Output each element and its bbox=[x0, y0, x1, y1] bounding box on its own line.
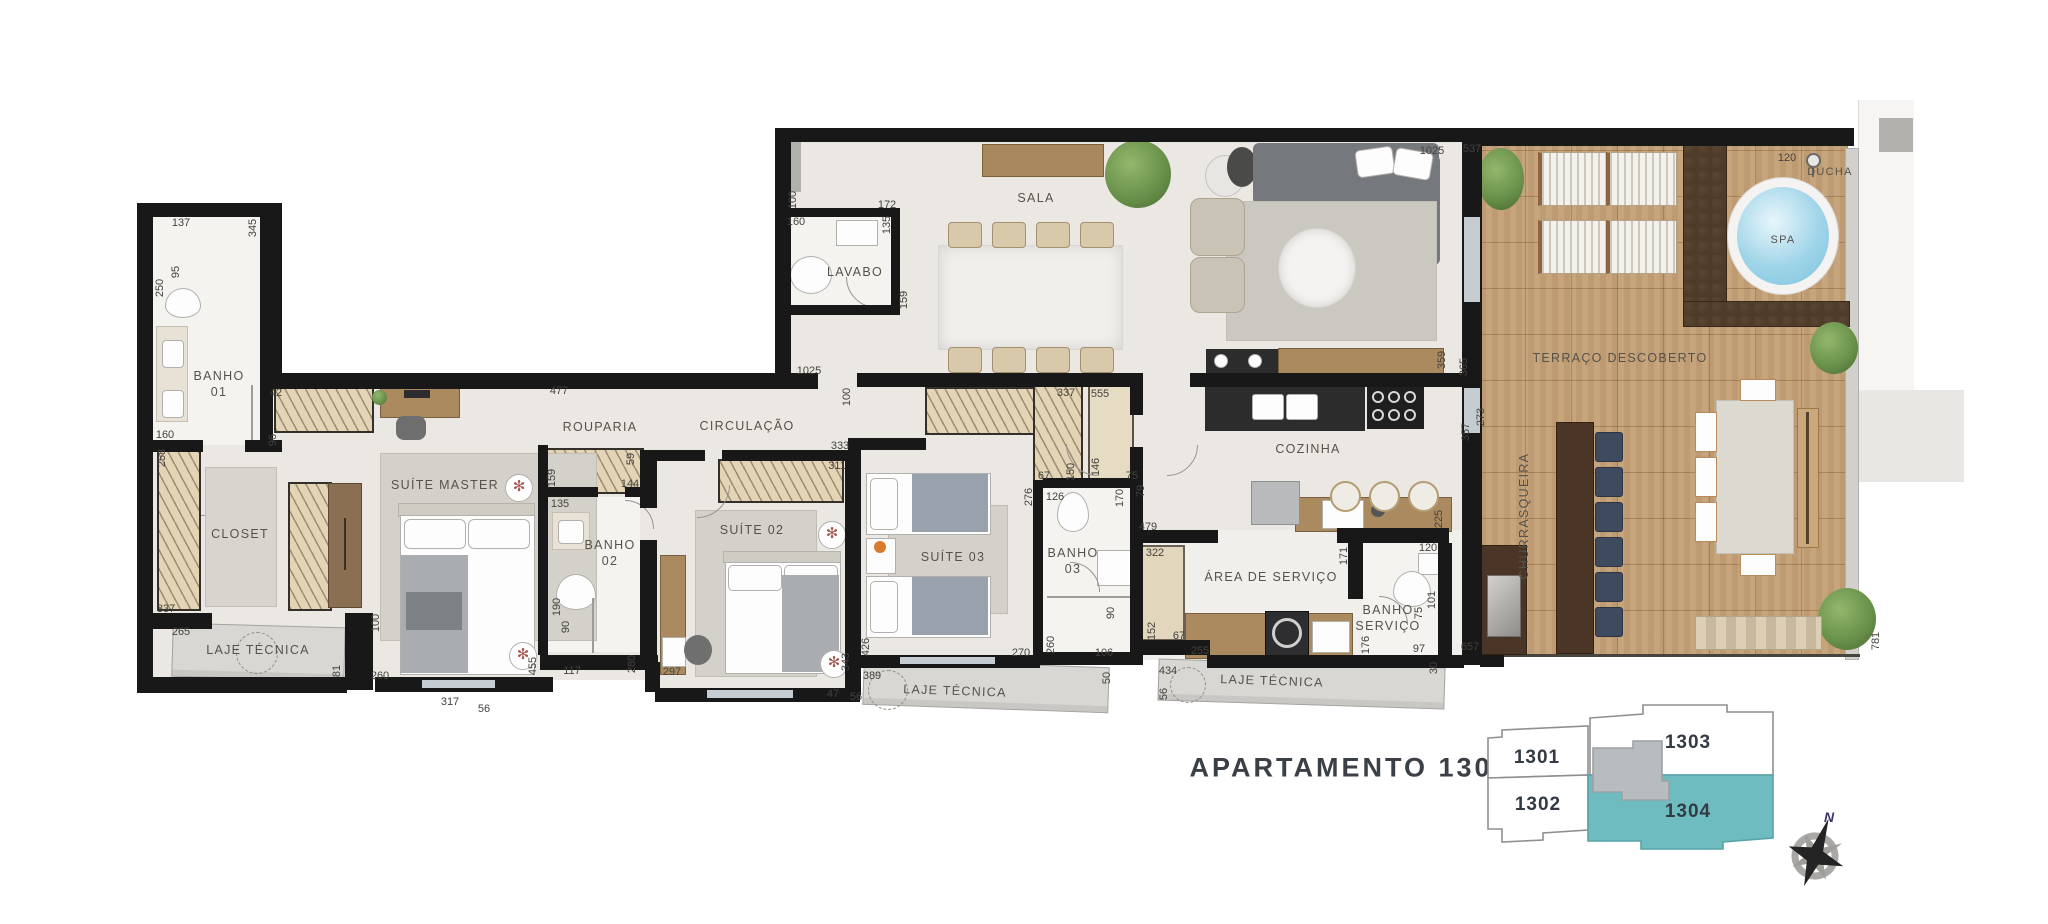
room-label-lavabo: LAVABO bbox=[827, 264, 883, 280]
dimension-label: 537 bbox=[1463, 143, 1481, 155]
room-label-circulacao: CIRCULAÇÃO bbox=[700, 418, 795, 434]
dimension-label: 337 bbox=[157, 603, 175, 615]
dimension-label: 172 bbox=[878, 199, 896, 211]
dimension-label: 146 bbox=[1090, 458, 1102, 476]
dimension-label: 260 bbox=[371, 670, 389, 682]
dimension-label: 79 bbox=[1135, 485, 1147, 497]
dimension-label: 120 bbox=[1778, 152, 1796, 164]
dimension-label: 477 bbox=[550, 385, 568, 397]
room-label-banho-servico: BANHO SERVIÇO bbox=[1355, 602, 1420, 635]
dimension-label: 176 bbox=[1360, 636, 1372, 654]
room-label-suite-02: SUÍTE 02 bbox=[720, 522, 785, 538]
dimension-label: 75 bbox=[1413, 607, 1425, 619]
dimension-label: 270 bbox=[1012, 647, 1030, 659]
dimension-label: 317 bbox=[441, 696, 459, 708]
room-label-suite-master: SUÍTE MASTER bbox=[391, 477, 499, 493]
dimension-label: 276 bbox=[1023, 488, 1035, 506]
dimension-label: 126 bbox=[1046, 491, 1064, 503]
room-label-suite-03: SUÍTE 03 bbox=[921, 549, 986, 565]
dimension-label: 333 bbox=[831, 440, 849, 452]
dimension-label: 135 bbox=[551, 498, 569, 510]
dimension-label: 1025 bbox=[1420, 145, 1444, 157]
dimension-label: 59 bbox=[625, 453, 637, 465]
room-label-banho-01: BANHO 01 bbox=[194, 368, 245, 401]
dimension-label: 255 bbox=[1191, 645, 1209, 657]
room-label-banho-03: BANHO 03 bbox=[1048, 545, 1099, 578]
dimension-label: 365 bbox=[1458, 358, 1470, 376]
dimension-label: 137 bbox=[172, 217, 190, 229]
dimension-label: 160 bbox=[787, 216, 805, 228]
compass-rose: N bbox=[1773, 806, 1863, 901]
dimension-label: 96 bbox=[267, 434, 279, 446]
dimension-label: 258 bbox=[156, 449, 168, 467]
dimension-label: 152 bbox=[1146, 622, 1158, 640]
dimension-label: 159 bbox=[546, 469, 558, 487]
dimension-label: 280 bbox=[626, 655, 638, 673]
dimension-label: 106 bbox=[1095, 647, 1113, 659]
dimension-label: 101 bbox=[1426, 591, 1438, 609]
room-label-terraco-descoberto: TERRAÇO DESCOBERTO bbox=[1532, 350, 1707, 366]
dimension-label: 144 bbox=[621, 478, 639, 490]
dimension-label: 95 bbox=[170, 266, 182, 278]
dimension-label: 56 bbox=[1158, 688, 1170, 700]
keyplan-label-1304: 1304 bbox=[1665, 801, 1711, 822]
dimension-label: 117 bbox=[563, 665, 581, 677]
dimension-label: 170 bbox=[1114, 489, 1126, 507]
dimension-label: 455 bbox=[527, 657, 539, 675]
dimension-label: 357 bbox=[1460, 423, 1472, 441]
dimension-label: 250 bbox=[154, 279, 166, 297]
dimension-label: 135 bbox=[881, 216, 893, 234]
dimension-label: 657 bbox=[1461, 641, 1479, 653]
dimension-label: 100 bbox=[787, 191, 799, 209]
room-label-spa: SPA bbox=[1770, 233, 1795, 247]
dimension-label: 171 bbox=[1338, 547, 1350, 565]
dimension-label: 311 bbox=[828, 460, 846, 472]
dimension-label: 273 bbox=[1475, 408, 1487, 426]
room-label-churrasqueira: CHURRASQUEIRA bbox=[1516, 453, 1532, 580]
dimension-label: 67 bbox=[1038, 470, 1050, 482]
dimension-label: 426 bbox=[860, 638, 872, 656]
dimension-label: 1025 bbox=[797, 365, 821, 377]
room-label-laje-tecnica-1: LAJE TÉCNICA bbox=[206, 642, 310, 658]
dimension-label: 90 bbox=[560, 621, 572, 633]
dimension-label: 337 bbox=[1057, 387, 1075, 399]
dimension-label: 30 bbox=[1428, 662, 1440, 674]
page-title: APARTAMENTO 1304 bbox=[1189, 753, 1510, 784]
room-label-banho-02: BANHO 02 bbox=[585, 537, 636, 570]
dimension-label: 160 bbox=[156, 429, 174, 441]
dimension-label: 56 bbox=[850, 691, 862, 703]
room-label-cozinha: COZINHA bbox=[1275, 441, 1340, 457]
keyplan-label-1301: 1301 bbox=[1514, 747, 1560, 768]
dimension-label: 265 bbox=[172, 626, 190, 638]
dimension-label: 159 bbox=[898, 291, 910, 309]
dimension-label: 100 bbox=[370, 614, 382, 632]
dimension-label: 322 bbox=[1146, 547, 1164, 559]
dimension-label: 555 bbox=[1091, 388, 1109, 400]
dimension-label: 190 bbox=[551, 598, 563, 616]
room-label-rouparia: ROUPARIA bbox=[563, 419, 638, 435]
dimension-label: 90 bbox=[1105, 607, 1117, 619]
dimension-label: 150 bbox=[1065, 463, 1077, 481]
keyplan-core bbox=[1593, 741, 1669, 800]
room-label-sala: SALA bbox=[1017, 190, 1054, 206]
room-label-closet: CLOSET bbox=[211, 526, 269, 542]
dimension-label: 81 bbox=[331, 665, 343, 677]
dimension-label: 297 bbox=[663, 666, 681, 678]
dimension-label: 120 bbox=[1419, 542, 1437, 554]
dimension-label: 343 bbox=[840, 653, 852, 671]
dimension-label: 97 bbox=[1413, 643, 1425, 655]
dimension-label: 345 bbox=[247, 219, 259, 237]
dimension-label: 389 bbox=[863, 670, 881, 682]
keyplan-label-1302: 1302 bbox=[1515, 794, 1561, 815]
dimension-label: 479 bbox=[1139, 521, 1157, 533]
compass-star-black bbox=[1778, 809, 1857, 896]
room-label-area-de-servico: ÁREA DE SERVIÇO bbox=[1204, 569, 1337, 585]
dimension-label: 225 bbox=[1433, 510, 1445, 528]
floor-plan-page: ✻ ✻ ✻ ✻ bbox=[0, 0, 2048, 924]
room-label-ducha: DUCHA bbox=[1807, 165, 1853, 179]
dimension-label: 434 bbox=[1159, 665, 1177, 677]
dimension-label: 56 bbox=[478, 703, 490, 715]
keyplan-label-1303: 1303 bbox=[1665, 732, 1711, 753]
dimension-label: 42 bbox=[270, 387, 282, 399]
dimension-label: 50 bbox=[1101, 672, 1113, 684]
compass-north-label: N bbox=[1824, 809, 1835, 825]
dimension-label: 781 bbox=[1870, 632, 1882, 650]
dimension-label: 359 bbox=[1436, 351, 1448, 369]
dimension-label: 47 bbox=[827, 688, 839, 700]
dimension-label: 100 bbox=[841, 388, 853, 406]
dimension-label: 260 bbox=[1045, 636, 1057, 654]
dimension-label: 67 bbox=[1173, 630, 1185, 642]
dimension-label: 75 bbox=[1126, 470, 1138, 482]
